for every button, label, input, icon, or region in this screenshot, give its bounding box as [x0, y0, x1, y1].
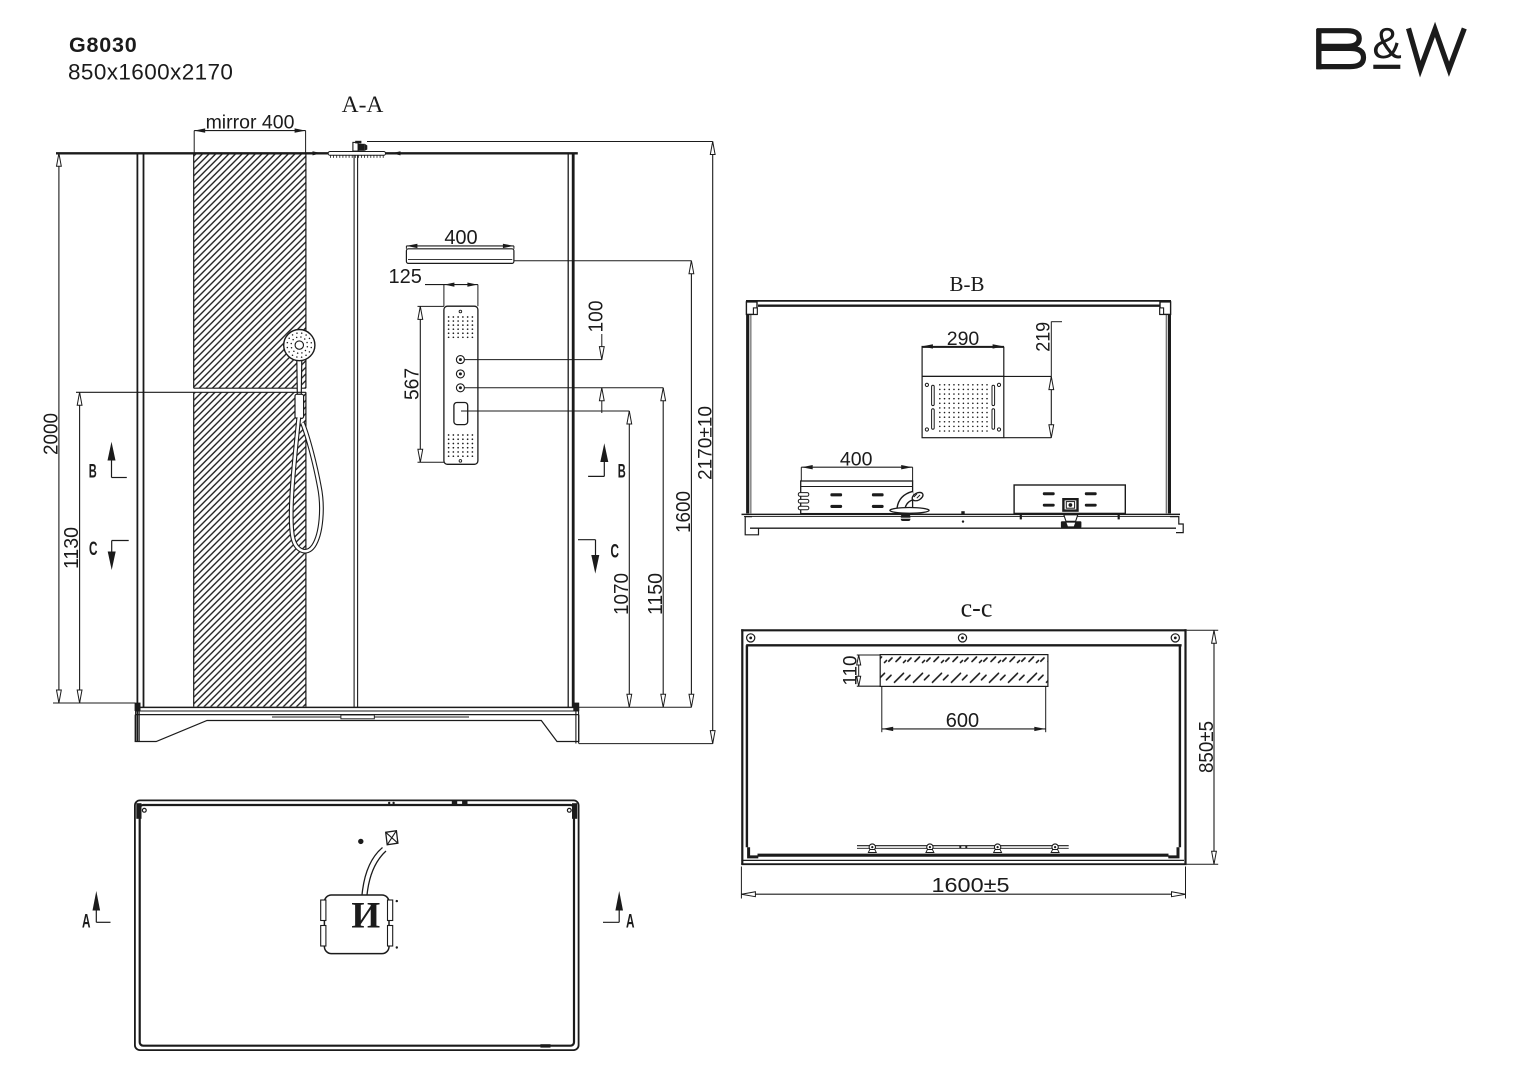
svg-text:2170±10: 2170±10 — [694, 406, 716, 480]
svg-text:290: 290 — [947, 328, 980, 350]
svg-text:110: 110 — [839, 655, 861, 685]
svg-text:125: 125 — [389, 266, 422, 288]
svg-text:850±5: 850±5 — [1195, 721, 1218, 773]
svg-text:219: 219 — [1033, 322, 1055, 352]
svg-text:B-B: B-B — [949, 272, 984, 296]
svg-text:1070: 1070 — [610, 573, 633, 615]
svg-text:A: A — [82, 910, 91, 932]
svg-text:100: 100 — [584, 301, 607, 333]
svg-text:C: C — [611, 541, 620, 563]
svg-text:400: 400 — [840, 449, 873, 471]
svg-text:1600: 1600 — [672, 491, 695, 533]
svg-text:G8030: G8030 — [69, 33, 138, 57]
svg-text:850x1600x2170: 850x1600x2170 — [68, 60, 233, 85]
svg-text:1150: 1150 — [644, 573, 667, 615]
svg-text:567: 567 — [401, 368, 424, 400]
svg-text:B: B — [89, 461, 97, 483]
svg-text:1130: 1130 — [60, 527, 83, 569]
svg-text:c-c: c-c — [961, 594, 993, 623]
svg-text:A: A — [626, 910, 635, 932]
svg-text:600: 600 — [946, 710, 979, 732]
svg-text:1600±5: 1600±5 — [932, 874, 1010, 897]
svg-text:B: B — [618, 461, 626, 483]
svg-text:C: C — [89, 538, 98, 560]
svg-text:A-A: A-A — [342, 92, 384, 118]
svg-text:2000: 2000 — [39, 413, 62, 455]
svg-text:&: & — [1372, 19, 1401, 68]
svg-text:400: 400 — [444, 227, 477, 249]
svg-text:И: И — [351, 895, 380, 936]
